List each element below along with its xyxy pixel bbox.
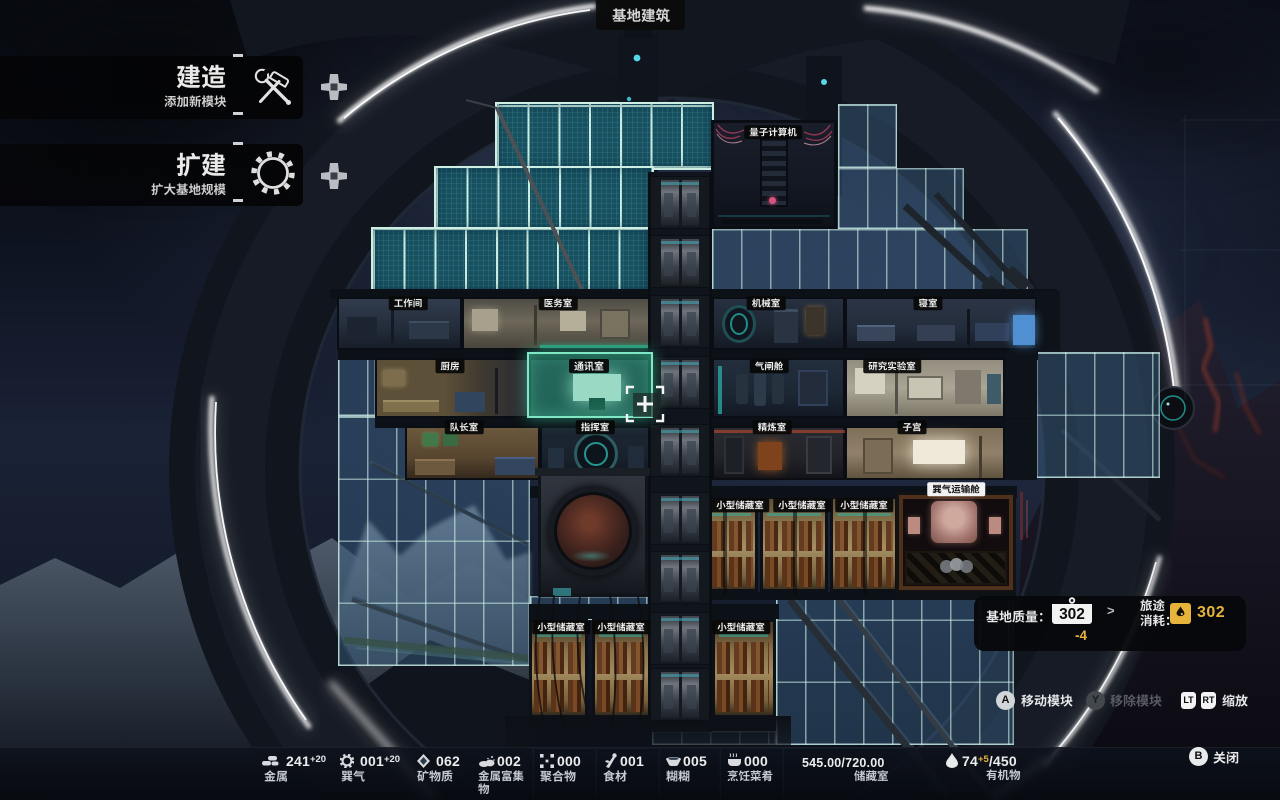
- svg-text:302: 302: [1059, 606, 1085, 623]
